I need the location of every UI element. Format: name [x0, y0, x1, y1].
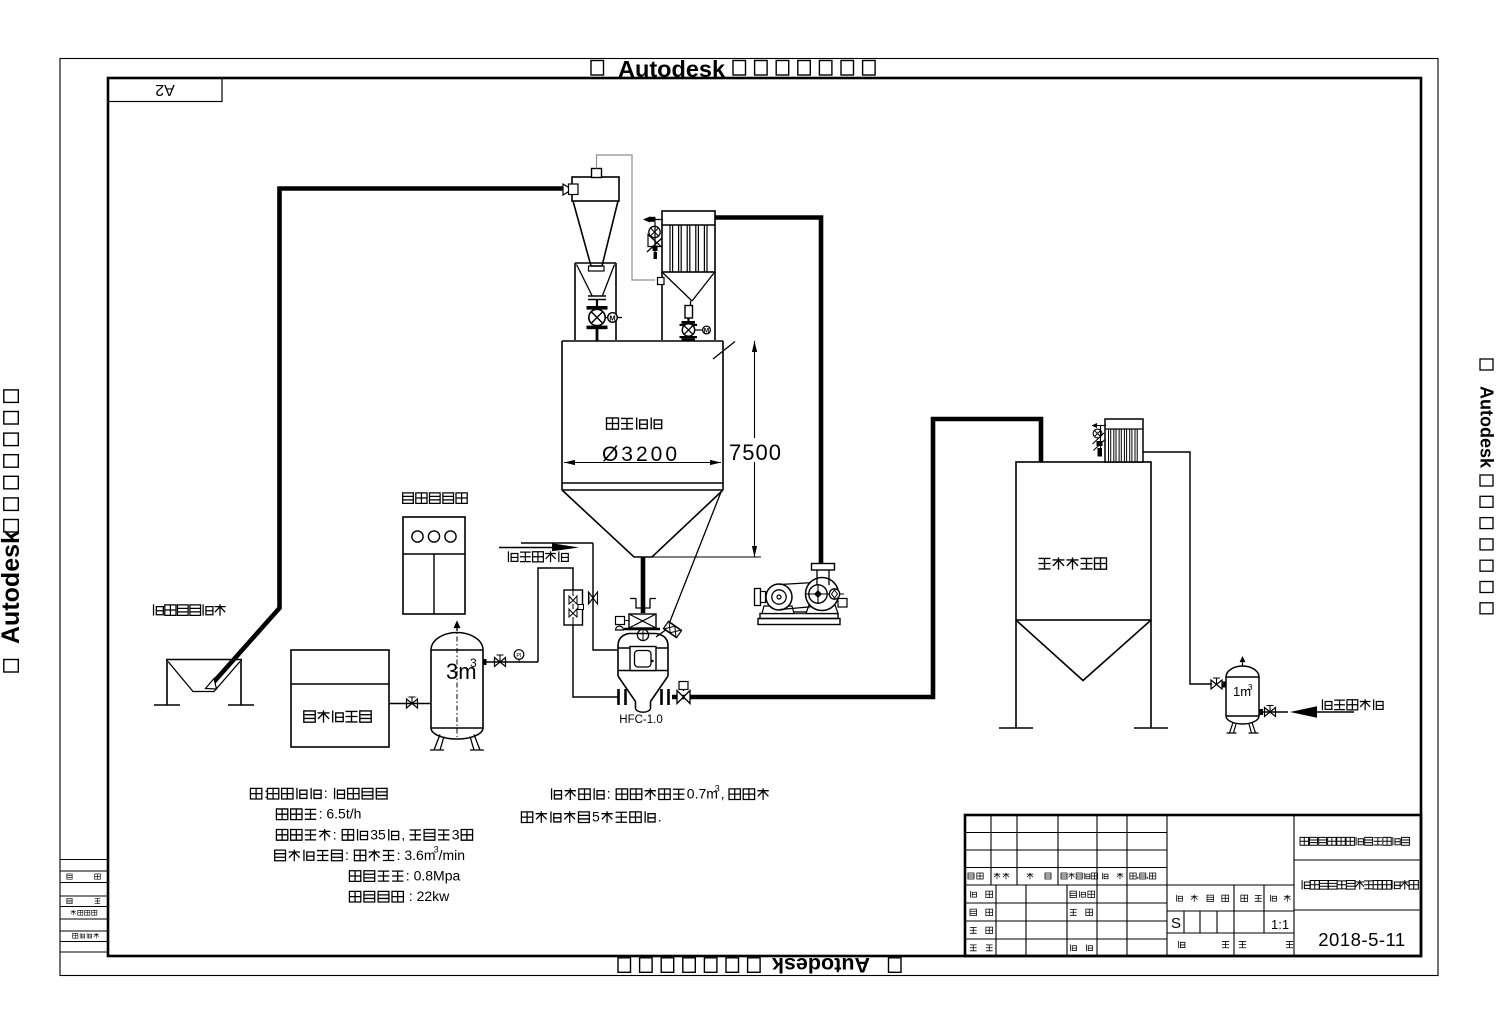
svg-text:/min: /min [439, 847, 465, 863]
svg-text:S: S [1171, 915, 1181, 932]
svg-text:M: M [609, 313, 615, 322]
svg-text:: 0.8Mpa: : 0.8Mpa [406, 868, 461, 884]
svg-text:,: , [721, 787, 725, 802]
svg-text:M: M [704, 327, 709, 334]
svg-text:Autodesk: Autodesk [618, 56, 726, 82]
svg-text:5: 5 [592, 809, 600, 825]
svg-text:Autodesk: Autodesk [772, 953, 870, 977]
svg-text:3: 3 [452, 826, 460, 842]
svg-text::: : [333, 826, 337, 842]
svg-text:HFC-1.0: HFC-1.0 [619, 714, 662, 726]
svg-text::: : [607, 786, 611, 802]
svg-text:0.7m: 0.7m [687, 786, 718, 802]
svg-text:.: . [658, 810, 662, 825]
svg-text:3: 3 [1248, 683, 1253, 692]
svg-text:35: 35 [370, 826, 386, 842]
svg-text:: 6.5t/h: : 6.5t/h [319, 806, 362, 822]
svg-text:Autodesk: Autodesk [0, 530, 25, 644]
svg-text:PI: PI [516, 653, 522, 659]
svg-text:1:1: 1:1 [1271, 917, 1289, 932]
svg-text:,: , [401, 827, 405, 842]
svg-text::: : [324, 785, 328, 801]
svg-text:: 22kw: : 22kw [409, 888, 450, 904]
svg-text:A2: A2 [155, 81, 175, 98]
svg-text:2018-5-11: 2018-5-11 [1318, 929, 1405, 950]
svg-text:Autodesk: Autodesk [1477, 386, 1497, 469]
svg-text::: : [345, 847, 349, 863]
svg-text:3: 3 [470, 656, 477, 670]
svg-text:3: 3 [715, 783, 720, 793]
svg-text:7500: 7500 [729, 440, 782, 465]
svg-text:: 3.6m: : 3.6m [397, 847, 436, 863]
